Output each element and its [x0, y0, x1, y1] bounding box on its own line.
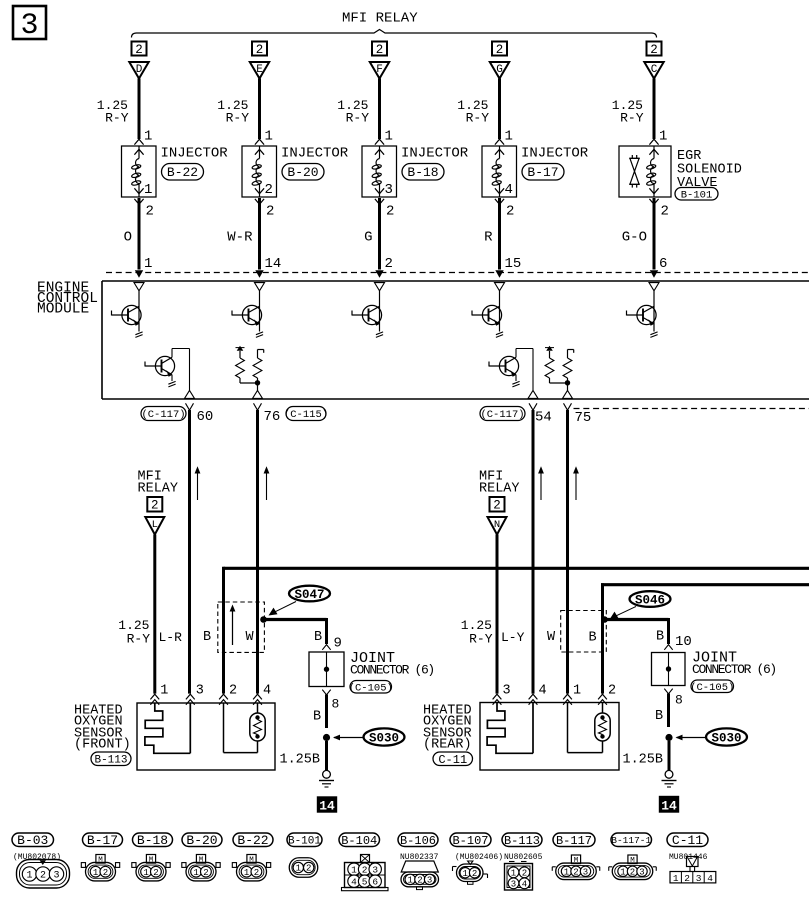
svg-text:NU802605: NU802605 [504, 853, 543, 862]
svg-text:1: 1 [351, 864, 357, 875]
svg-text:B-104: B-104 [341, 834, 377, 848]
svg-text:2: 2 [376, 43, 384, 57]
svg-text:(C-105): (C-105) [349, 682, 393, 694]
svg-text:2: 2 [661, 204, 669, 220]
svg-text:MFI RELAY: MFI RELAY [342, 11, 418, 27]
svg-text:E: E [256, 64, 263, 76]
svg-text:3: 3 [20, 9, 38, 43]
svg-text:2: 2 [608, 684, 616, 699]
svg-text:B-117: B-117 [556, 834, 592, 848]
svg-text:60: 60 [197, 409, 214, 425]
svg-text:G: G [496, 64, 503, 76]
svg-text:B-18: B-18 [137, 833, 168, 848]
svg-text:B-113: B-113 [504, 834, 540, 848]
svg-text:L-R: L-R [159, 630, 183, 645]
svg-text:MU801446: MU801446 [669, 853, 708, 862]
svg-text:INJECTOR: INJECTOR [161, 146, 229, 162]
svg-text:1: 1 [659, 129, 667, 145]
svg-text:B-18: B-18 [407, 165, 438, 180]
svg-text:INJECTOR: INJECTOR [521, 146, 589, 162]
svg-text:1: 1 [407, 875, 412, 885]
svg-text:2: 2 [135, 43, 143, 57]
svg-text:2: 2 [151, 499, 159, 513]
svg-text:2: 2 [265, 182, 273, 198]
svg-text:1: 1 [26, 870, 32, 881]
svg-text:2: 2 [229, 684, 237, 699]
svg-text:(REAR): (REAR) [423, 738, 472, 753]
svg-text:(C-105): (C-105) [690, 682, 734, 694]
svg-text:1: 1 [244, 868, 249, 878]
svg-text:M: M [149, 856, 154, 864]
svg-text:CONNECTOR (6): CONNECTOR (6) [350, 662, 434, 677]
svg-text:5: 5 [362, 876, 368, 887]
svg-text:1.25B: 1.25B [279, 753, 320, 768]
svg-text:(C-115): (C-115) [284, 409, 328, 421]
svg-text:1: 1 [144, 182, 152, 198]
svg-text:B-20: B-20 [186, 833, 217, 848]
svg-text:R-Y: R-Y [469, 632, 493, 647]
svg-text:W: W [547, 630, 556, 645]
svg-text:R-Y: R-Y [346, 111, 370, 126]
svg-text:C-11: C-11 [438, 753, 467, 767]
svg-text:3: 3 [196, 684, 204, 699]
svg-text:G: G [364, 230, 372, 246]
svg-text:54: 54 [535, 410, 552, 426]
svg-text:2: 2 [684, 873, 690, 884]
svg-text:3: 3 [696, 873, 702, 884]
svg-text:2: 2 [203, 868, 208, 878]
svg-text:B-17: B-17 [87, 833, 118, 848]
svg-text:2: 2 [385, 256, 393, 272]
svg-text:15: 15 [505, 256, 522, 272]
svg-text:B-17: B-17 [527, 165, 558, 180]
svg-text:1: 1 [143, 868, 148, 878]
svg-text:3: 3 [427, 875, 432, 885]
svg-text:B-101: B-101 [681, 189, 713, 201]
svg-text:3: 3 [503, 684, 511, 699]
svg-text:1: 1 [462, 869, 467, 879]
svg-text:(FRONT): (FRONT) [74, 738, 131, 753]
svg-text:14: 14 [661, 798, 677, 813]
svg-text:W: W [246, 630, 255, 645]
svg-text:B: B [203, 630, 211, 645]
svg-text:RELAY: RELAY [479, 482, 520, 497]
svg-text:75: 75 [575, 410, 592, 426]
svg-text:M: M [249, 856, 254, 864]
svg-text:2: 2 [103, 868, 108, 878]
svg-text:1: 1 [564, 867, 569, 877]
svg-text:2: 2 [472, 869, 477, 879]
svg-text:G-O: G-O [622, 230, 647, 246]
svg-text:4: 4 [263, 684, 271, 699]
svg-text:L-Y: L-Y [501, 630, 525, 645]
svg-text:1.25B: 1.25B [622, 753, 663, 768]
svg-text:10: 10 [675, 634, 692, 650]
svg-text:3: 3 [639, 867, 644, 877]
svg-text:6: 6 [372, 876, 378, 887]
svg-text:R-Y: R-Y [226, 111, 250, 126]
svg-text:B-107: B-107 [452, 834, 488, 848]
svg-text:8: 8 [675, 693, 683, 708]
svg-text:M: M [98, 856, 103, 864]
svg-text:2: 2 [153, 868, 158, 878]
svg-text:4: 4 [707, 873, 713, 884]
svg-text:2: 2 [146, 204, 154, 220]
svg-text:R-Y: R-Y [466, 111, 490, 126]
svg-text:2: 2 [266, 204, 274, 220]
svg-text:B-101: B-101 [288, 835, 321, 847]
svg-text:6: 6 [659, 256, 667, 272]
svg-text:9: 9 [334, 636, 342, 652]
svg-text:(C-117): (C-117) [141, 409, 185, 421]
svg-text:2: 2 [256, 43, 264, 57]
svg-text:1: 1 [620, 867, 625, 877]
svg-text:S030: S030 [711, 732, 741, 746]
svg-text:2: 2 [493, 499, 501, 513]
svg-text:2: 2 [522, 868, 527, 878]
svg-text:2: 2 [254, 868, 259, 878]
svg-text:N: N [494, 519, 500, 531]
svg-text:B-117-1: B-117-1 [611, 835, 651, 846]
svg-text:B-20: B-20 [287, 165, 318, 180]
svg-text:1: 1 [511, 868, 516, 878]
svg-text:2: 2 [630, 867, 635, 877]
svg-text:1: 1 [144, 129, 152, 145]
svg-text:(C-117): (C-117) [480, 409, 524, 421]
svg-text:C: C [651, 64, 658, 76]
svg-text:B-03: B-03 [17, 833, 48, 848]
svg-text:1: 1 [144, 256, 152, 272]
svg-text:INJECTOR: INJECTOR [281, 146, 349, 162]
svg-text:L: L [152, 519, 158, 531]
svg-text:B-22: B-22 [237, 833, 268, 848]
svg-text:2: 2 [506, 204, 514, 220]
svg-text:B-106: B-106 [400, 834, 436, 848]
svg-text:B-113: B-113 [94, 754, 127, 766]
svg-text:R-Y: R-Y [105, 111, 129, 126]
svg-text:2: 2 [40, 870, 46, 881]
svg-text:2: 2 [362, 864, 368, 875]
svg-text:76: 76 [264, 409, 281, 425]
svg-text:1: 1 [93, 868, 98, 878]
svg-text:3: 3 [385, 182, 393, 198]
svg-text:1: 1 [385, 129, 393, 145]
svg-text:2: 2 [573, 867, 578, 877]
svg-text:S046: S046 [635, 594, 665, 608]
svg-text:4: 4 [351, 876, 357, 887]
svg-text:F: F [376, 64, 383, 76]
svg-text:2: 2 [650, 43, 658, 57]
svg-text:M: M [199, 856, 204, 864]
svg-text:2: 2 [417, 875, 422, 885]
svg-text:B: B [313, 710, 321, 725]
svg-text:8: 8 [332, 697, 340, 712]
svg-text:4: 4 [522, 879, 527, 889]
svg-text:3: 3 [583, 867, 588, 877]
svg-text:R: R [484, 230, 493, 246]
svg-text:B: B [655, 709, 663, 724]
svg-text:B: B [314, 630, 322, 645]
svg-text:R-Y: R-Y [127, 632, 151, 647]
svg-text:3: 3 [53, 870, 59, 881]
svg-text:D: D [136, 64, 143, 76]
svg-text:1: 1 [505, 129, 513, 145]
svg-text:3: 3 [372, 864, 378, 875]
svg-text:4: 4 [539, 684, 547, 699]
svg-text:MODULE: MODULE [37, 302, 89, 318]
svg-text:CONNECTOR (6): CONNECTOR (6) [692, 662, 776, 677]
svg-text:1: 1 [160, 684, 168, 699]
svg-text:1: 1 [673, 873, 679, 884]
svg-text:C-11: C-11 [672, 833, 703, 848]
svg-text:1: 1 [193, 868, 198, 878]
svg-text:4: 4 [505, 182, 513, 198]
svg-text:S047: S047 [294, 588, 324, 602]
svg-text:2: 2 [386, 204, 394, 220]
svg-text:14: 14 [265, 256, 282, 272]
svg-text:(MU802078): (MU802078) [13, 853, 61, 862]
svg-text:(MU802406): (MU802406) [455, 853, 503, 862]
svg-text:R-Y: R-Y [620, 111, 644, 126]
svg-text:B: B [589, 631, 597, 646]
svg-text:2: 2 [496, 43, 504, 57]
svg-text:S030: S030 [369, 732, 399, 746]
svg-text:3: 3 [511, 879, 516, 889]
svg-text:1: 1 [265, 129, 273, 145]
svg-text:O: O [124, 230, 132, 246]
svg-text:W-R: W-R [227, 230, 253, 246]
svg-text:2: 2 [306, 864, 311, 874]
svg-text:B: B [656, 630, 664, 645]
svg-text:INJECTOR: INJECTOR [401, 146, 469, 162]
svg-text:14: 14 [319, 798, 335, 813]
svg-text:1: 1 [296, 864, 301, 874]
svg-text:1: 1 [573, 684, 581, 699]
svg-text:B-22: B-22 [167, 165, 198, 180]
svg-text:RELAY: RELAY [138, 482, 179, 497]
